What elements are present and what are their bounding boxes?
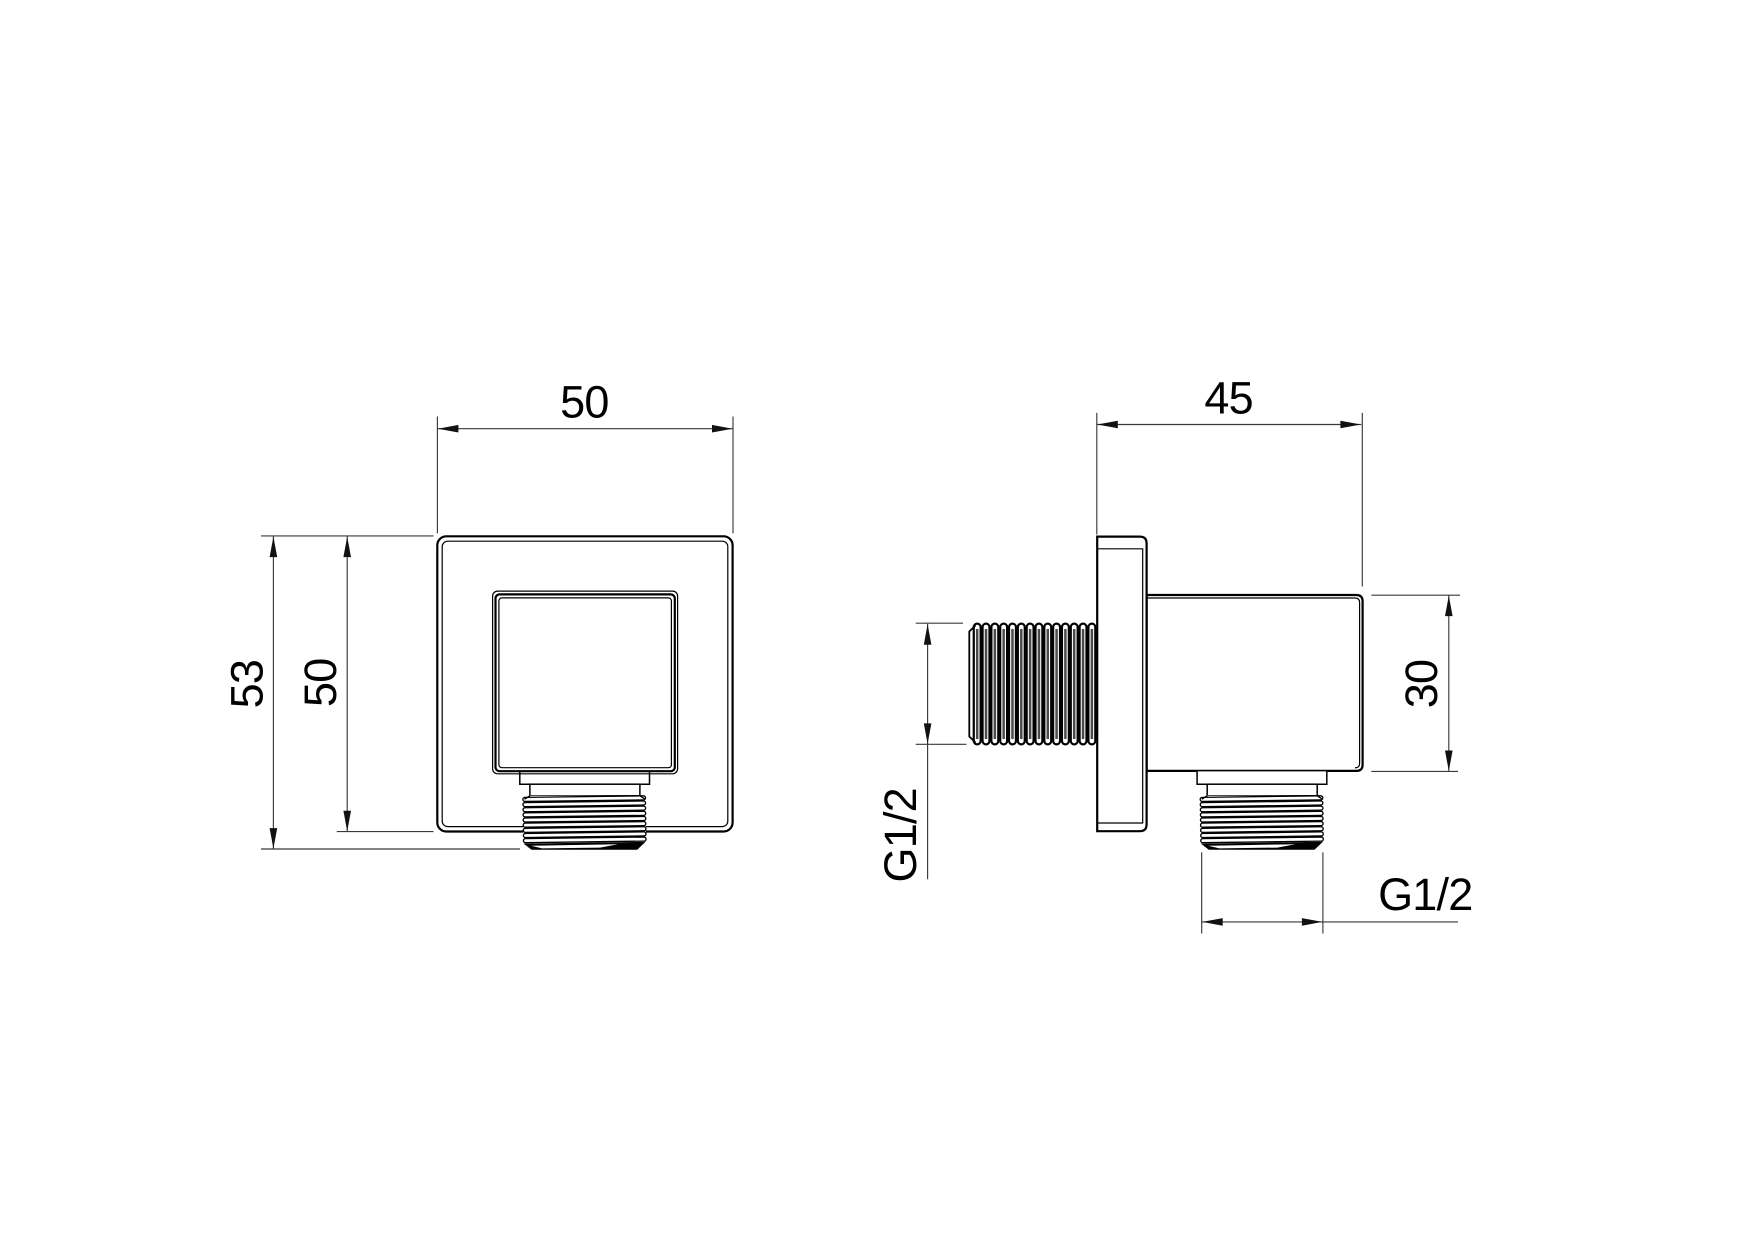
svg-text:50: 50 (560, 377, 608, 428)
svg-text:50: 50 (295, 659, 346, 707)
svg-text:53: 53 (221, 660, 272, 708)
svg-text:45: 45 (1204, 373, 1252, 424)
svg-text:G1/2: G1/2 (1378, 869, 1472, 920)
svg-text:G1/2: G1/2 (875, 788, 926, 882)
svg-text:30: 30 (1396, 660, 1447, 708)
